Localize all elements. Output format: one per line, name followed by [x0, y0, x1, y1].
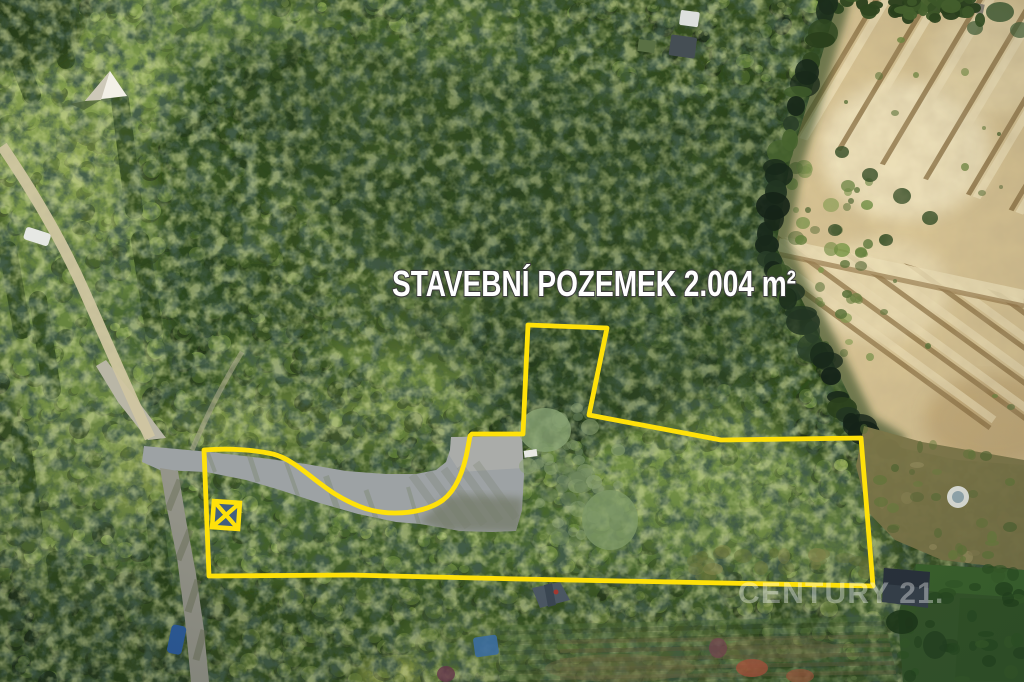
svg-text:CENTURY 21.: CENTURY 21. [738, 577, 945, 610]
svg-text:STAVEBNÍ POZEMEK 2.004 m²: STAVEBNÍ POZEMEK 2.004 m² [392, 263, 796, 304]
